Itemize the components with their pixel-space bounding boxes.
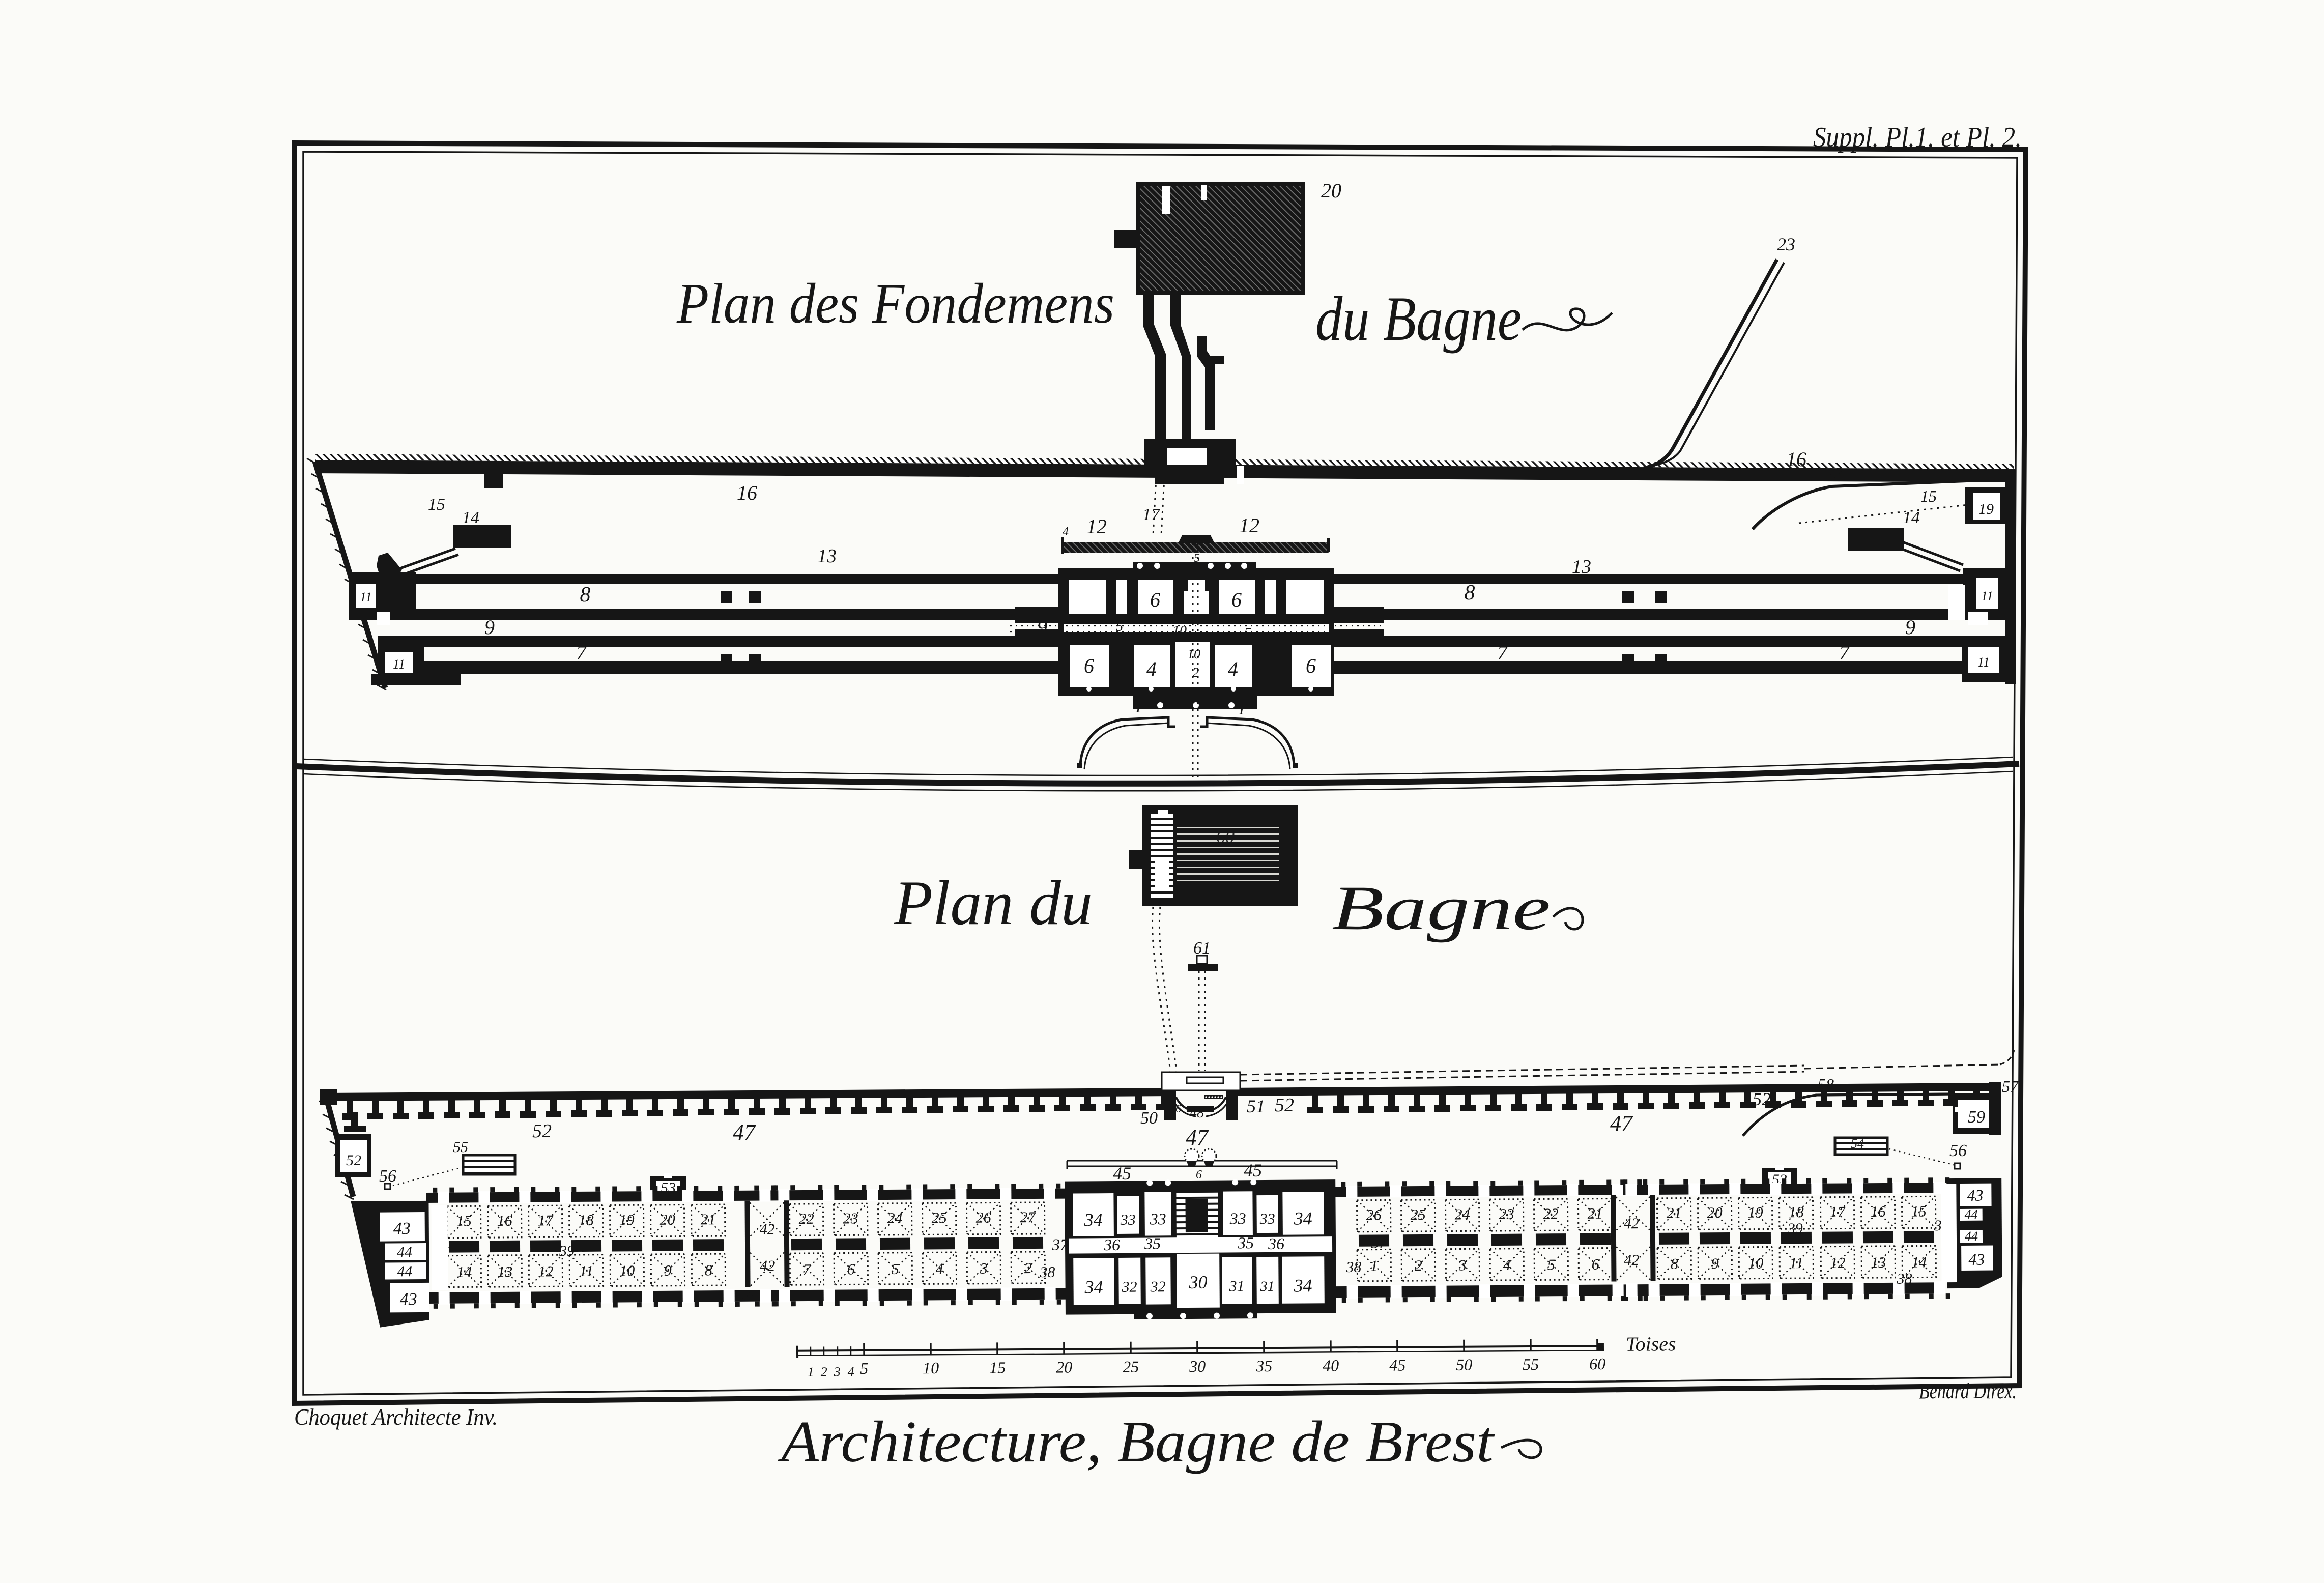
svg-text:14: 14 [456,1263,472,1280]
svg-text:35: 35 [1237,1233,1254,1252]
svg-text:31: 31 [1259,1279,1274,1294]
svg-text:25: 25 [932,1210,947,1226]
svg-text:58: 58 [1818,1075,1834,1093]
svg-text:14: 14 [1903,508,1920,527]
svg-text:39: 39 [559,1243,575,1259]
svg-text:47: 47 [733,1120,756,1145]
svg-text:26: 26 [976,1210,991,1226]
svg-text:56: 56 [1949,1141,1967,1160]
svg-text:21: 21 [701,1211,716,1228]
svg-text:10: 10 [619,1262,635,1279]
svg-text:61: 61 [1193,939,1211,958]
svg-text:38: 38 [742,1287,758,1304]
svg-text:12: 12 [538,1263,553,1280]
svg-text:9: 9 [1711,1255,1719,1272]
svg-text:43: 43 [1968,1250,1985,1269]
svg-text:45: 45 [1113,1163,1131,1184]
svg-text:36: 36 [1103,1235,1120,1254]
svg-text:6: 6 [1084,654,1094,677]
svg-text:6: 6 [1592,1256,1599,1273]
svg-text:2: 2 [1024,1260,1032,1277]
svg-text:12: 12 [1830,1254,1845,1271]
svg-text:6: 6 [1231,588,1242,611]
svg-text:52: 52 [1275,1095,1294,1116]
svg-text:11: 11 [1789,1255,1803,1272]
svg-text:18: 18 [1789,1204,1804,1221]
svg-text:32: 32 [1150,1278,1165,1295]
svg-text:56: 56 [379,1167,396,1186]
svg-text:16: 16 [1871,1203,1886,1220]
svg-text:4: 4 [1063,525,1069,538]
svg-text:5: 5 [1244,625,1252,642]
svg-text:38: 38 [1039,1264,1055,1281]
svg-text:44: 44 [397,1263,412,1280]
svg-text:11: 11 [1977,655,1990,670]
svg-text:6: 6 [847,1261,855,1278]
svg-text:12: 12 [1086,515,1107,538]
svg-text:6: 6 [1150,588,1160,611]
svg-text:du Bagne: du Bagne [1315,284,1522,354]
svg-text:21: 21 [1667,1205,1682,1222]
svg-text:52: 52 [1753,1089,1771,1109]
svg-text:Choquet Architecte Inv.: Choquet Architecte Inv. [294,1404,498,1430]
svg-text:38: 38 [1345,1259,1361,1276]
svg-text:11: 11 [393,657,405,672]
svg-text:15: 15 [989,1358,1006,1376]
svg-text:39: 39 [1787,1220,1803,1237]
svg-text:36: 36 [1268,1234,1284,1253]
svg-text:7: 7 [1497,641,1508,664]
svg-text:43: 43 [400,1290,417,1309]
svg-text:55: 55 [1523,1355,1539,1373]
svg-text:19: 19 [1978,501,1994,517]
svg-text:52: 52 [532,1120,552,1142]
svg-text:54: 54 [1851,1136,1864,1151]
svg-text:15: 15 [1911,1203,1927,1220]
svg-text:20: 20 [1056,1358,1072,1376]
svg-text:42: 42 [760,1257,775,1274]
svg-text:30: 30 [1189,1357,1206,1375]
svg-text:Benard Direx.: Benard Direx. [1919,1378,2017,1403]
svg-text:1: 1 [1370,1258,1378,1275]
svg-text:47: 47 [1186,1125,1209,1150]
svg-text:10: 10 [923,1359,939,1377]
svg-text:38: 38 [1896,1271,1912,1287]
svg-text:Architecture, Bagne de Brest: Architecture, Bagne de Brest [778,1409,1495,1475]
svg-text:45: 45 [1244,1160,1262,1181]
svg-text:6: 6 [1306,654,1316,677]
svg-text:4: 4 [1146,657,1157,680]
svg-text:45: 45 [1389,1356,1405,1374]
svg-text:15: 15 [456,1213,472,1229]
svg-text:60: 60 [1589,1355,1605,1373]
svg-text:10: 10 [1748,1255,1763,1272]
svg-text:2: 2 [821,1364,827,1379]
svg-text:20: 20 [1707,1204,1723,1221]
svg-text:Plan des Fondemens: Plan des Fondemens [676,272,1114,335]
svg-text:20: 20 [1321,179,1341,202]
svg-text:8: 8 [1671,1256,1678,1273]
svg-text:10: 10 [1187,647,1200,661]
svg-text:42: 42 [1624,1215,1639,1232]
svg-text:51: 51 [1247,1096,1265,1116]
svg-text:43: 43 [1967,1186,1983,1204]
svg-text:Toises: Toises [1626,1332,1676,1356]
svg-text:48: 48 [1190,1105,1204,1121]
svg-text:3: 3 [834,1364,841,1379]
svg-text:9: 9 [1905,616,1915,639]
svg-text:57: 57 [2002,1077,2019,1096]
svg-text:32: 32 [1121,1279,1137,1296]
svg-text:13: 13 [1871,1254,1886,1271]
svg-text:12: 12 [1239,514,1259,537]
svg-text:14: 14 [1911,1254,1927,1271]
svg-text:7: 7 [1839,641,1850,664]
svg-text:13: 13 [1572,556,1591,578]
svg-text:4: 4 [936,1260,943,1277]
svg-text:23: 23 [1777,234,1795,254]
svg-text:55: 55 [453,1139,468,1156]
svg-text:50: 50 [1456,1356,1472,1374]
svg-text:13: 13 [497,1263,512,1280]
svg-text:1: 1 [1238,700,1246,718]
svg-text:5: 5 [1547,1256,1555,1273]
svg-text:1: 1 [808,1365,814,1379]
svg-text:20: 20 [660,1212,675,1228]
svg-text:2: 2 [1415,1257,1422,1274]
svg-text:31: 31 [1228,1278,1244,1294]
svg-text:6: 6 [1196,1168,1202,1182]
svg-text:17: 17 [1142,505,1161,524]
svg-text:22: 22 [1543,1205,1559,1222]
svg-text:42: 42 [1624,1252,1639,1269]
svg-text:34: 34 [1084,1210,1103,1230]
svg-text:27: 27 [1020,1209,1037,1226]
svg-text:15: 15 [428,495,445,514]
svg-text:40: 40 [1323,1356,1339,1374]
svg-text:25: 25 [1411,1206,1426,1223]
svg-text:42: 42 [760,1221,775,1237]
svg-text:47: 47 [1610,1111,1633,1136]
svg-text:24: 24 [887,1210,903,1227]
svg-text:16: 16 [1786,448,1806,471]
svg-text:17: 17 [538,1212,554,1229]
svg-text:25: 25 [1123,1358,1139,1376]
svg-text:5: 5 [1194,552,1200,565]
svg-text:37: 37 [1370,1233,1388,1251]
svg-text:44: 44 [397,1244,412,1260]
svg-text:8: 8 [580,583,591,607]
svg-text:35: 35 [1144,1234,1161,1252]
svg-text:4: 4 [1228,657,1238,680]
svg-text:33: 33 [1150,1210,1166,1228]
svg-text:14: 14 [462,508,479,527]
svg-text:3: 3 [980,1260,988,1277]
svg-text:34: 34 [1294,1208,1312,1228]
svg-text:Bagne: Bagne [1332,873,1551,943]
svg-text:33: 33 [1120,1212,1136,1228]
svg-text:34: 34 [1084,1277,1103,1297]
svg-text:18: 18 [1826,464,1842,482]
svg-text:11: 11 [360,590,372,605]
svg-text:24: 24 [1455,1206,1470,1223]
svg-text:44: 44 [1965,1207,1978,1222]
svg-text:11: 11 [1981,589,1993,603]
svg-text:8: 8 [1465,581,1475,605]
svg-text:34: 34 [1293,1275,1312,1296]
svg-text:60: 60 [1216,826,1235,847]
svg-text:50: 50 [1140,1109,1158,1128]
svg-text:21: 21 [1588,1205,1603,1222]
svg-text:5: 5 [892,1261,899,1278]
svg-text:13: 13 [817,545,837,567]
svg-text:4: 4 [848,1364,854,1379]
svg-text:44: 44 [1965,1229,1978,1244]
svg-text:19: 19 [619,1212,635,1228]
svg-text:43: 43 [393,1219,411,1238]
svg-text:30: 30 [1188,1272,1207,1292]
svg-text:3: 3 [1458,1257,1467,1274]
svg-text:52: 52 [346,1152,361,1169]
svg-text:16: 16 [737,481,757,504]
svg-text:16: 16 [497,1213,512,1229]
svg-text:4: 4 [1503,1257,1511,1274]
svg-text:26: 26 [1366,1207,1382,1224]
svg-text:Plan du: Plan du [894,868,1093,938]
svg-text:18: 18 [579,1212,594,1229]
svg-text:7: 7 [576,641,587,664]
svg-text:46: 46 [1170,1102,1181,1115]
svg-text:5: 5 [860,1359,868,1377]
svg-text:19: 19 [1748,1204,1763,1221]
svg-text:23: 23 [843,1210,858,1227]
svg-text:1: 1 [1134,698,1143,716]
svg-text:11: 11 [579,1263,593,1280]
svg-text:9: 9 [484,616,495,639]
svg-text:8: 8 [705,1262,712,1279]
svg-text:22: 22 [799,1211,814,1227]
svg-text:35: 35 [1255,1357,1272,1375]
svg-text:15: 15 [1920,487,1937,505]
svg-text:9: 9 [664,1262,672,1279]
svg-text:33: 33 [1229,1209,1246,1227]
svg-text:33: 33 [1259,1211,1275,1227]
svg-text:59: 59 [1968,1108,1985,1127]
svg-text:23: 23 [1499,1206,1514,1223]
svg-text:7: 7 [803,1261,812,1278]
svg-text:17: 17 [1830,1203,1846,1220]
